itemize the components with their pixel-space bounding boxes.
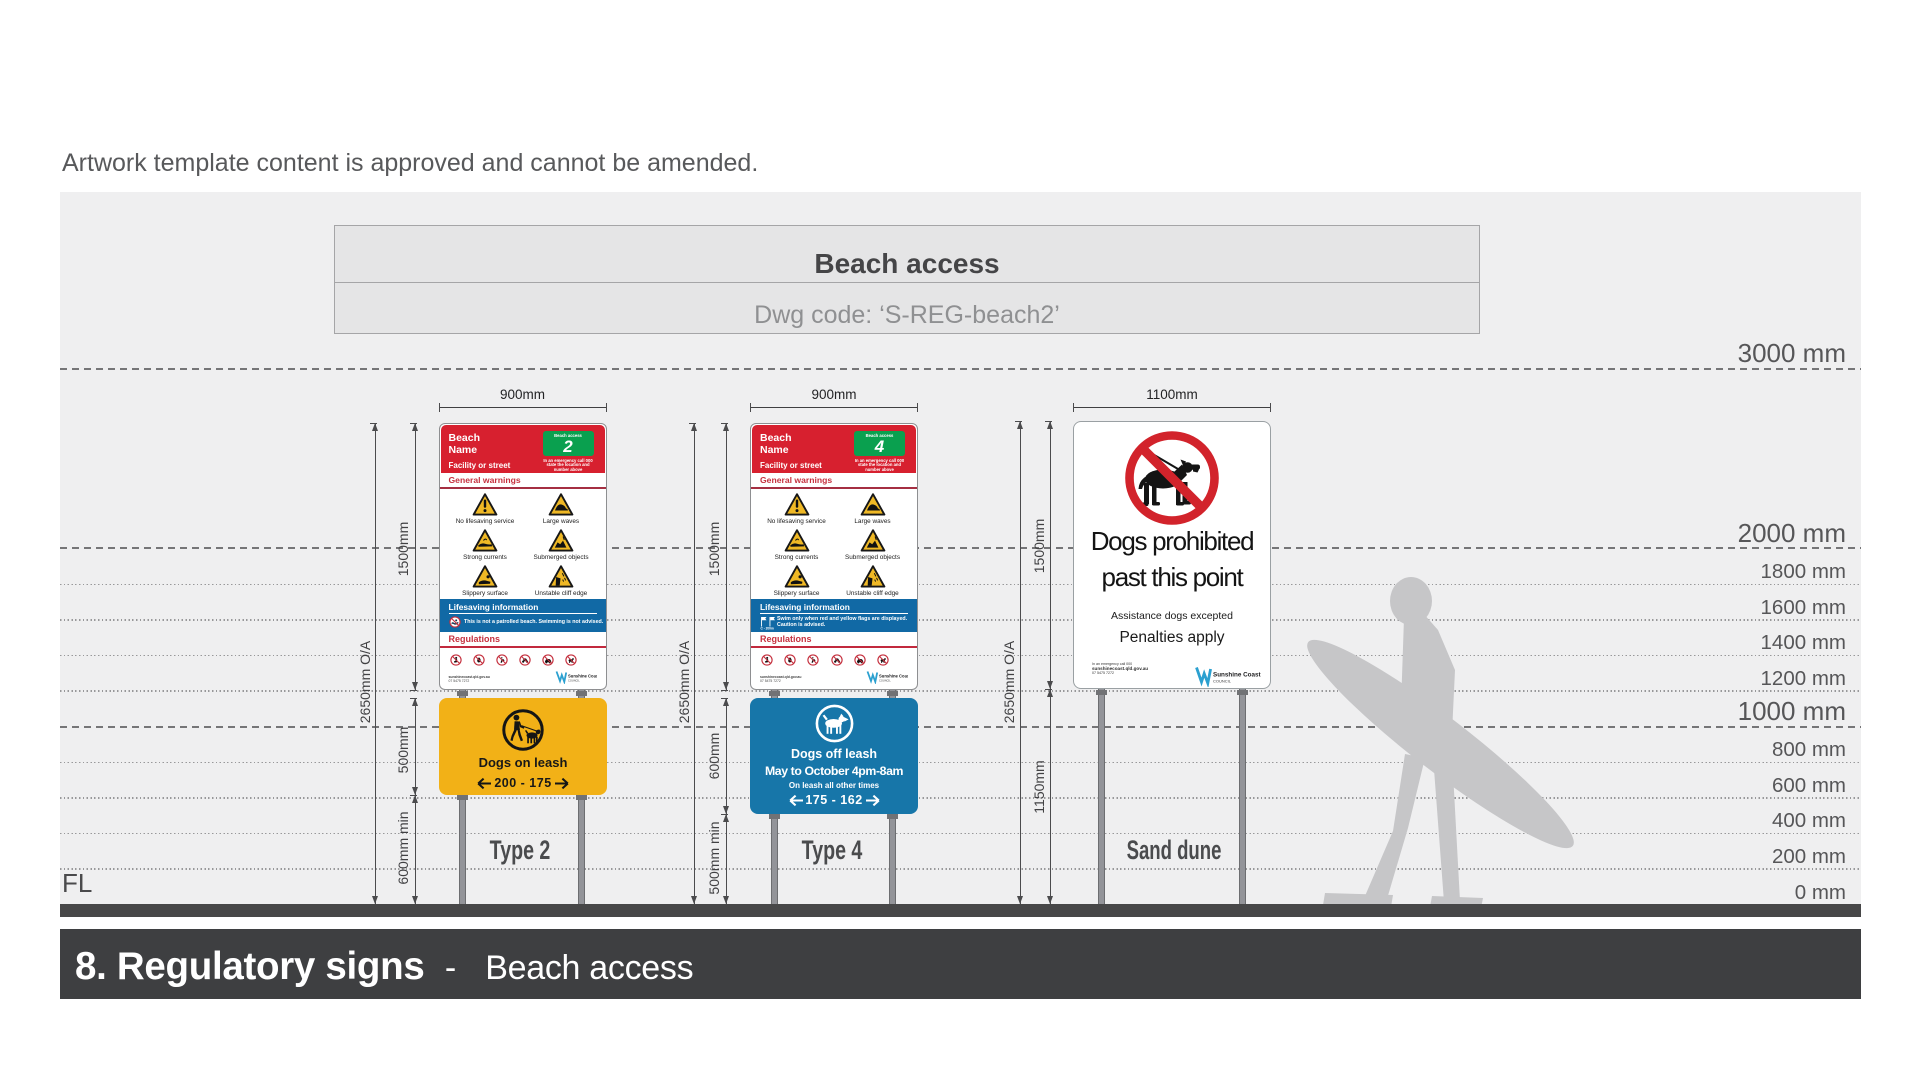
svg-text:Sunshine Coast: Sunshine Coast [568, 674, 597, 679]
svg-text:C - 200m: C - 200m [761, 626, 774, 629]
svg-text:Sunshine Coast: Sunshine Coast [879, 674, 908, 679]
svg-text:Sunshine Coast: Sunshine Coast [1213, 672, 1261, 679]
svg-text:COUNCIL: COUNCIL [568, 679, 580, 683]
svg-text:COUNCIL: COUNCIL [1213, 679, 1232, 684]
svg-text:COUNCIL: COUNCIL [879, 679, 891, 683]
